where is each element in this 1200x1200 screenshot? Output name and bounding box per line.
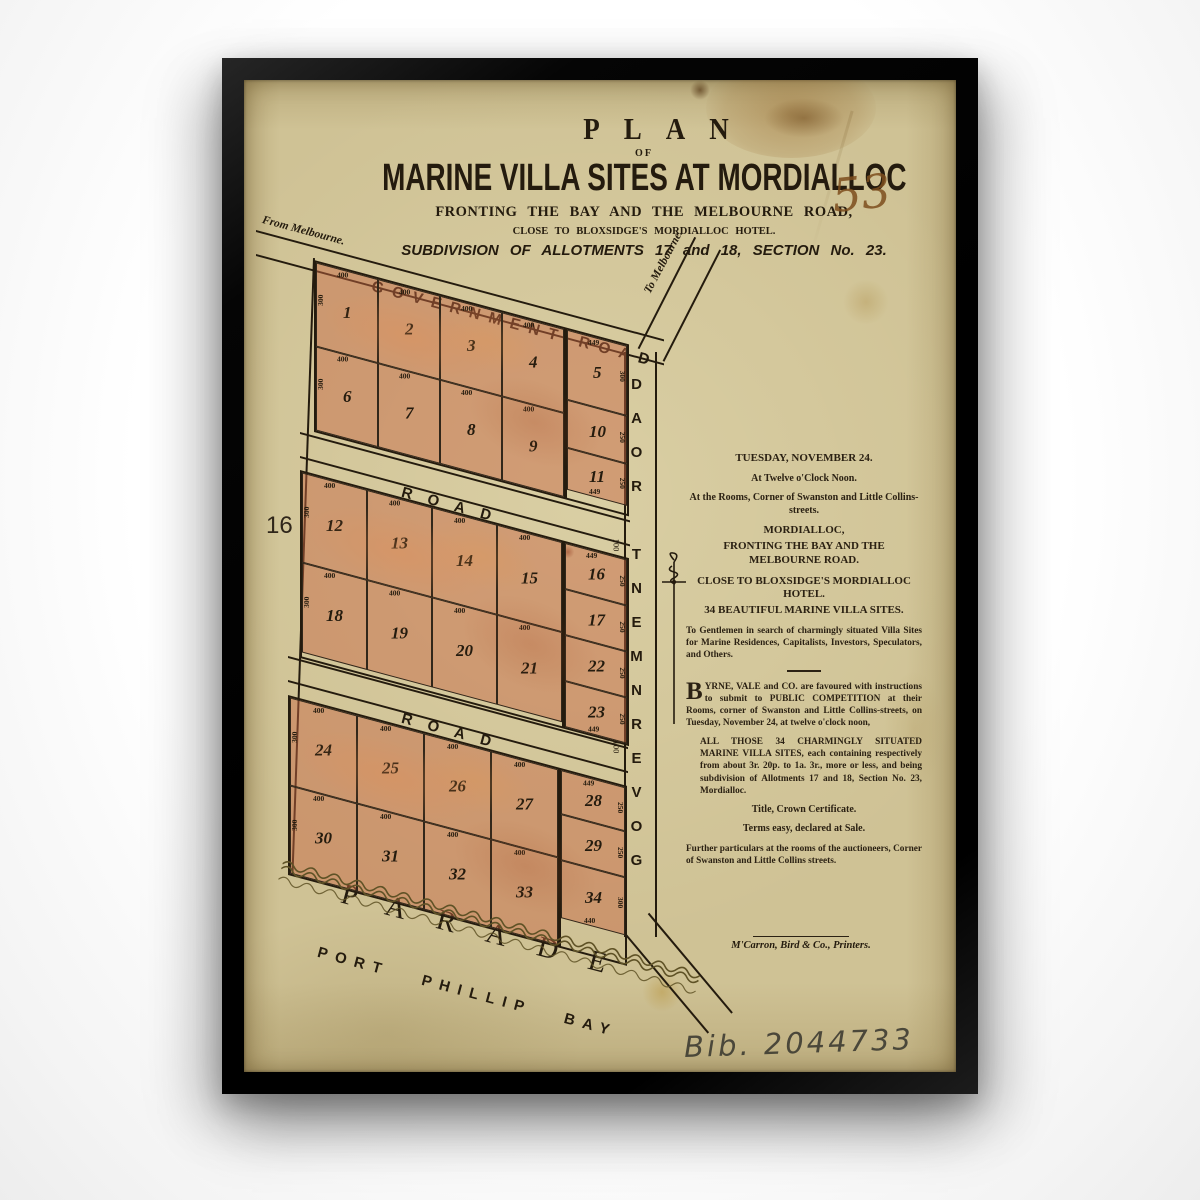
printer-name: M'Carron, Bird & Co., Printers. <box>696 940 906 951</box>
frontage-dim: 400 <box>447 830 458 839</box>
frontage-dim: 400 <box>461 304 472 313</box>
lot-number: 27 <box>516 794 533 814</box>
depth-dim: 250 <box>616 847 625 858</box>
lot-number: 21 <box>521 658 538 678</box>
subtitle-subdivision: SUBDIVISION OF ALLOTMENTS 17 and 18, SEC… <box>344 242 944 259</box>
lot-number: 2 <box>405 319 414 339</box>
lot-number: 32 <box>449 864 466 884</box>
lot-number: 9 <box>529 437 538 457</box>
lot-number: 33 <box>516 882 533 902</box>
lot-number: 13 <box>391 534 408 554</box>
lot-number: 30 <box>315 829 332 849</box>
lot-parcel: 4008 <box>440 380 502 481</box>
frontage-dim: 400 <box>380 724 391 733</box>
lot-parcel: 4007 <box>378 363 440 464</box>
lot-number: 26 <box>449 776 466 796</box>
frontage-dim: 449 <box>583 779 594 788</box>
lot-parcel: 40019 <box>367 580 432 687</box>
lot-parcel: 40014 <box>432 507 497 614</box>
lot-parcel: 40020 <box>432 597 497 704</box>
frontage-dim: 400 <box>461 388 472 397</box>
lot-number: 3 <box>467 336 476 356</box>
notice-terms-line: Terms easy, declared at Sale. <box>686 823 922 836</box>
lot-number: 31 <box>382 846 399 866</box>
frontage-dim: 449 <box>588 338 599 347</box>
picture-frame: PLAN OF MARINE VILLA SITES AT MORDIALLOC… <box>222 58 978 1094</box>
frontage-dim: 400 <box>313 706 324 715</box>
notice-close-to: CLOSE TO BLOXSIDGE'S MORDIALLOC HOTEL. <box>686 575 922 603</box>
frontage-dim: 400 <box>337 355 348 364</box>
handwritten-number: 53 <box>829 163 893 223</box>
lot-parcel: 40021 <box>497 615 562 722</box>
lot-number: 16 <box>588 564 605 584</box>
lot-number: 18 <box>326 606 343 626</box>
lot-number: 17 <box>588 610 605 630</box>
notice-byrne: BYRNE, VALE and CO. are favoured with in… <box>686 681 922 729</box>
frontage-dim: 400 <box>337 271 348 280</box>
lot-number: 14 <box>456 551 473 571</box>
frontage-dim: 400 <box>514 848 525 857</box>
drop-cap: B <box>686 681 703 702</box>
depth-dim: 300 <box>616 897 625 908</box>
printer-rule <box>753 936 849 937</box>
map-paper: PLAN OF MARINE VILLA SITES AT MORDIALLOC… <box>244 80 956 1072</box>
notice-further: Further particulars at the rooms of the … <box>686 843 922 867</box>
frontage-dim: 400 <box>324 481 335 490</box>
frontage-dim: 400 <box>389 588 400 597</box>
depth-dim: 300 <box>302 597 311 608</box>
frontage-dim: 400 <box>523 321 534 330</box>
subtitle-close-to: CLOSE TO BLOXSIDGE'S MORDIALLOC HOTEL. <box>344 226 944 237</box>
notice-sites: 34 BEAUTIFUL MARINE VILLA SITES. <box>686 604 922 618</box>
lot-number: 15 <box>521 568 538 588</box>
title-plan: PLAN <box>344 114 956 145</box>
auction-notice: TUESDAY, NOVEMBER 24. At Twelve o'Clock … <box>686 452 922 874</box>
notice-byrne-text: YRNE, VALE and CO. are favoured with ins… <box>686 682 922 728</box>
product-scene: PLAN OF MARINE VILLA SITES AT MORDIALLOC… <box>0 0 1200 1200</box>
lot-number: 11 <box>589 467 605 487</box>
width-dim: 449 <box>589 487 600 496</box>
lot-number: 34 <box>585 888 602 908</box>
notice-fronting: FRONTING THE BAY AND THE MELBOURNE ROAD. <box>686 540 922 568</box>
frontage-dim: 400 <box>454 516 465 525</box>
frontage-dim: 449 <box>586 551 597 560</box>
lot-number: 23 <box>588 702 605 722</box>
depth-dim: 250 <box>616 802 625 813</box>
lot-number: 25 <box>382 758 399 778</box>
lot-number: 12 <box>326 516 343 536</box>
depth-dim: 300 <box>290 731 299 742</box>
frontage-dim: 400 <box>324 571 335 580</box>
depth-dim: 300 <box>316 295 325 306</box>
depth-dim: 300 <box>290 819 299 830</box>
lot-parcel: 40013 <box>367 490 432 597</box>
frontage-dim: 400 <box>523 405 534 414</box>
adjacent-section-number: 16 <box>266 512 293 540</box>
lot-number: 22 <box>588 656 605 676</box>
lot-number: 6 <box>343 387 352 407</box>
lot-number: 7 <box>405 403 414 423</box>
depth-dim: 250 <box>618 621 627 632</box>
depth-dim: 250 <box>618 713 627 724</box>
frontage-dim: 400 <box>454 606 465 615</box>
notice-all-those: ALL THOSE 34 CHARMINGLY SITUATED MARINE … <box>686 736 922 796</box>
frontage-dim: 400 <box>519 533 530 542</box>
notice-gentlemen: To Gentlemen in search of charmingly sit… <box>686 625 922 661</box>
notice-place: MORDIALLOC, <box>686 524 922 538</box>
depth-dim: 300 <box>618 370 627 381</box>
frontage-dim: 400 <box>313 794 324 803</box>
lot-number: 20 <box>456 641 473 661</box>
lot-parcel: 4003006 <box>316 347 378 448</box>
depth-dim: 250 <box>618 667 627 678</box>
lot-parcel: 40030012 <box>302 473 367 580</box>
divider-rule <box>787 670 821 672</box>
frontage-dim: 400 <box>514 760 525 769</box>
lot-number: 29 <box>585 836 602 856</box>
lot-number: 4 <box>529 353 538 373</box>
frontage-dim: 400 <box>447 742 458 751</box>
frontage-dim: 400 <box>389 498 400 507</box>
printer-credit: M'Carron, Bird & Co., Printers. <box>696 936 906 951</box>
width-dim: 440 <box>584 916 595 925</box>
auction-date: TUESDAY, NOVEMBER 24. <box>686 452 922 466</box>
depth-dim: 250 <box>618 432 627 443</box>
lot-number: 5 <box>593 363 602 383</box>
depth-dim: 250 <box>618 575 627 586</box>
survey-mark-icon <box>660 548 688 733</box>
depth-dim: 300 <box>316 379 325 390</box>
government-road-vertical-label: DAOR TNEMNREVOG <box>628 376 645 941</box>
width-dim: 449 <box>588 725 599 734</box>
auction-time: At Twelve o'Clock Noon. <box>686 473 922 486</box>
lot-number: 1 <box>343 303 352 323</box>
frontage-dim: 400 <box>380 812 391 821</box>
catalog-number-handwriting: Bib. 2044733 <box>683 1022 914 1064</box>
lot-parcel: 4009 <box>502 396 564 497</box>
lot-number: 24 <box>315 741 332 761</box>
lot-number: 8 <box>467 420 476 440</box>
road-width-dim: 100 <box>611 539 621 552</box>
notice-title-line: Title, Crown Certificate. <box>686 804 922 817</box>
lot-parcel: 40030018 <box>302 563 367 670</box>
frontage-dim: 400 <box>519 623 530 632</box>
frontage-dim: 400 <box>399 371 410 380</box>
auction-venue: At the Rooms, Corner of Swanston and Lit… <box>686 492 922 517</box>
lot-number: 28 <box>585 791 602 811</box>
lot-number: 10 <box>589 422 606 442</box>
lot-number: 19 <box>391 624 408 644</box>
depth-dim: 300 <box>302 507 311 518</box>
lot-parcel: 40015 <box>497 525 562 632</box>
frontage-dim: 400 <box>399 287 410 296</box>
depth-dim: 250 <box>618 478 627 489</box>
